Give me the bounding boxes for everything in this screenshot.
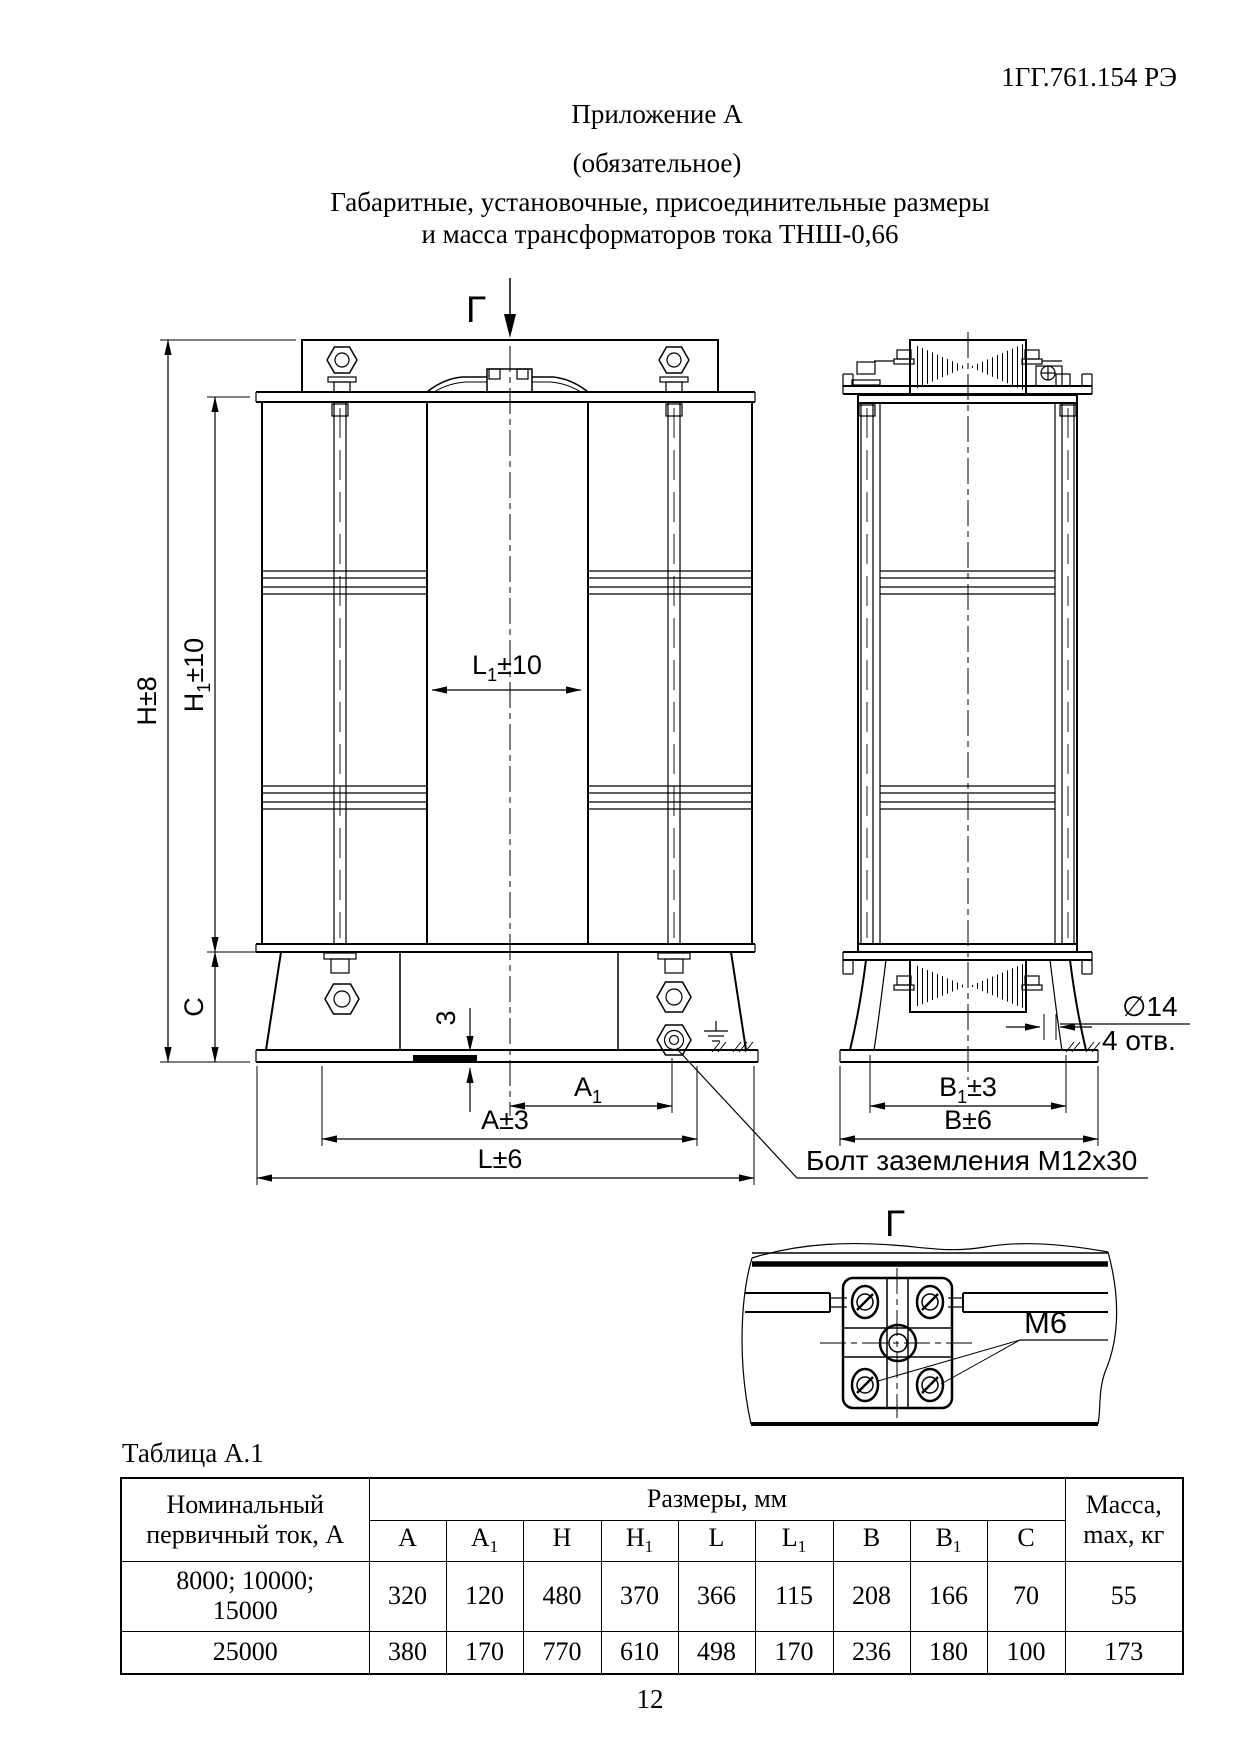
front-view: Г [256,278,758,1116]
cell-value: 610 [601,1631,678,1674]
dim-label-A: A±3 [481,1105,529,1135]
cell-current: 8000; 10000;15000 [121,1561,369,1631]
table-row: 8000; 10000;15000 320 120 480 370 366 11… [121,1561,1183,1631]
clamp-strap [427,369,588,392]
top-plate-bolt-right [659,347,689,392]
document-page: 1ГГ.761.154 РЭ Приложение А (обязательно… [0,0,1241,1755]
cell-mass: 173 [1065,1631,1183,1674]
dim-label-L1: L1±10 [472,650,542,685]
col-header-H1: H1 [601,1520,678,1561]
dimensions: H±8 H1±10 C L1±10 3 A1 A±3 [132,340,1190,1185]
dim-label-H1: H1±10 [179,638,214,712]
thread-label-M6: М6 [1024,1305,1067,1340]
cell-value: 370 [601,1561,678,1631]
cell-value: 170 [446,1631,523,1674]
col-header-C: C [987,1520,1065,1561]
cell-current: 25000 [121,1631,369,1674]
flange-bolt-left [852,362,880,385]
hole-count-label: 4 отв. [1102,1025,1176,1056]
ground-bolt-label: Болт заземления М12х30 [806,1145,1137,1176]
flange-bracket-right [1036,366,1070,386]
top-plate-bolt-left [327,347,357,392]
col-header-L: L [678,1520,755,1561]
cell-value: 120 [446,1561,523,1631]
table-caption: Таблица А.1 [122,1438,264,1469]
dim-label-B: B±6 [944,1105,992,1135]
cell-value: 380 [369,1631,446,1674]
cell-value: 70 [987,1561,1065,1631]
side-view [840,332,1100,1080]
cell-value: 100 [987,1631,1065,1674]
tie-rod-front-left [324,402,356,973]
dim-label-L: L±6 [478,1144,523,1174]
cell-value: 498 [678,1631,755,1674]
cell-value: 770 [523,1631,601,1674]
col-header-B1: B1 [910,1520,987,1561]
col-header-A1: A1 [446,1520,523,1561]
hole-diameter-label: ∅14 [1122,991,1178,1022]
cell-value: 115 [755,1561,833,1631]
detail-view: Г [742,1203,1117,1424]
cell-value: 480 [523,1561,601,1631]
tie-rod-front-right [658,402,690,973]
col-header-A: A [369,1520,446,1561]
tie-rod-side-right [1060,403,1076,944]
dim-label-B1: B1±3 [939,1072,997,1107]
col-header-current: Номинальный первичный ток, А [121,1478,369,1561]
page-number: 12 [637,1684,664,1715]
ground-symbol-icon [704,1021,728,1041]
cell-value: 236 [833,1631,910,1674]
spec-table: Номинальный первичный ток, А Размеры, мм… [120,1477,1184,1675]
dim-label-gap3: 3 [431,1010,461,1025]
cell-value: 170 [755,1631,833,1674]
tie-rod-side-left [859,403,875,944]
cell-value: 320 [369,1561,446,1631]
section-mark-top: Г [466,289,486,330]
col-header-H: H [523,1520,601,1561]
cell-value: 166 [910,1561,987,1631]
cell-mass: 55 [1065,1561,1183,1631]
cell-value: 208 [833,1561,910,1631]
col-header-L1: L1 [755,1520,833,1561]
col-header-sizes: Размеры, мм [369,1478,1065,1520]
dim-label-A1: A1 [574,1072,602,1107]
dim-label-C: C [179,997,209,1017]
cell-value: 366 [678,1561,755,1631]
table-row: 25000 380 170 770 610 498 170 236 180 10… [121,1631,1183,1674]
detail-mark: Г [885,1203,905,1244]
col-header-B: B [833,1520,910,1561]
col-header-mass: Масса, max, кг [1065,1478,1183,1561]
cell-value: 180 [910,1631,987,1674]
dim-label-H: H±8 [132,676,162,725]
